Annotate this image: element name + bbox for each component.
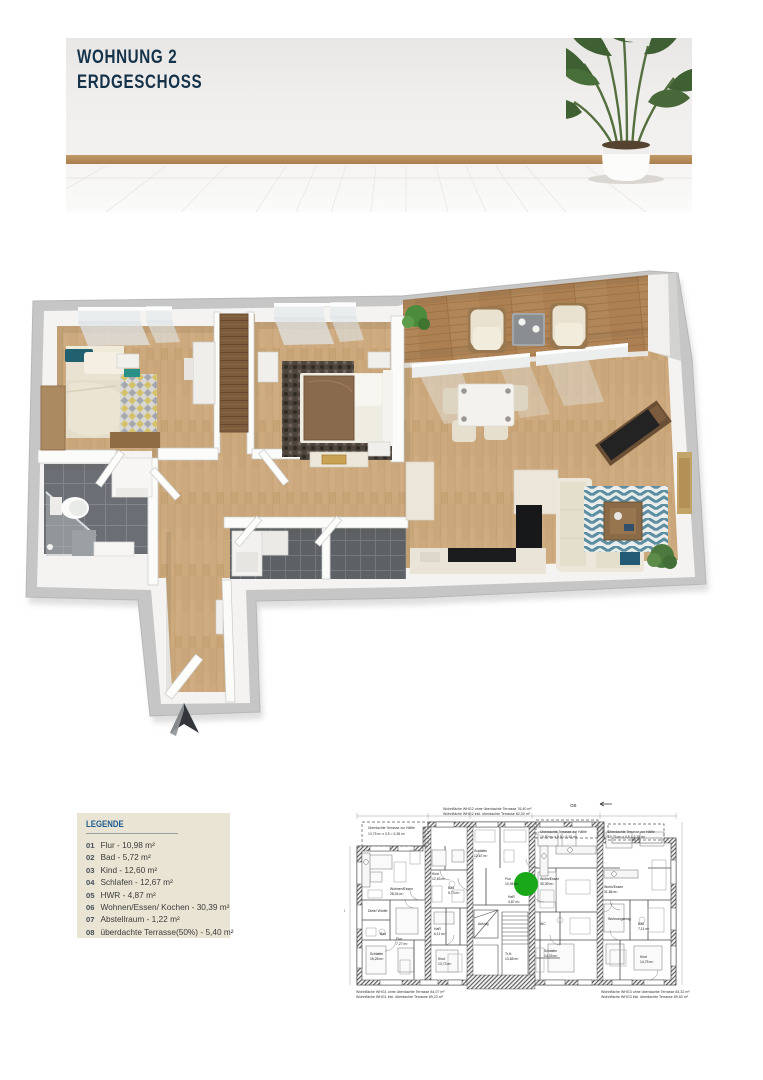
svg-text:13,75 m² x 0,5 = 5,38 m²: 13,75 m² x 0,5 = 5,38 m² [368, 832, 406, 836]
svg-text:Überdachte Terrasse zur Hälfte: Überdachte Terrasse zur Hälfte [368, 826, 415, 830]
svg-text:12,63 m²: 12,63 m² [432, 877, 446, 881]
svg-text:31,86 m²: 31,86 m² [604, 890, 618, 894]
svg-text:Wohnen/Essen: Wohnen/Essen [390, 887, 413, 891]
svg-text:Wohnfläche WHG2 ohne überdacht: Wohnfläche WHG2 ohne überdachte Terrasse… [443, 807, 532, 811]
svg-text:Kind: Kind [438, 957, 445, 961]
svg-text:HaR: HaR [434, 927, 441, 931]
svg-text:Wohn/Essen: Wohn/Essen [540, 877, 559, 881]
svg-text:Schlafen: Schlafen [370, 952, 383, 956]
svg-text:4,87 m²: 4,87 m² [508, 900, 520, 904]
svg-text:30,39 m²: 30,39 m² [540, 882, 554, 886]
svg-text:Wohnfläche WHG1 inkl. überdach: Wohnfläche WHG1 inkl. überdachte Terrass… [356, 995, 444, 999]
svg-text:Schlafen: Schlafen [544, 949, 557, 953]
svg-text:10,80 m² x 0,5 = 5,40 m²: 10,80 m² x 0,5 = 5,40 m² [540, 835, 578, 839]
svg-text:Bad: Bad [380, 932, 386, 936]
svg-text:Wohnfläche WHG1 ohne überdacht: Wohnfläche WHG1 ohne überdachte Terrasse… [356, 990, 445, 994]
svg-text:Flur: Flur [396, 937, 403, 941]
svg-text:Aufzug: Aufzug [478, 922, 489, 926]
svg-text:Flur: Flur [505, 877, 512, 881]
svg-text:28,04 m²: 28,04 m² [390, 892, 404, 896]
svg-text:I: I [344, 908, 345, 913]
svg-text:Kind: Kind [432, 872, 439, 876]
svg-text:Bad: Bad [448, 886, 454, 890]
svg-text:15,28 m²: 15,28 m² [370, 957, 384, 961]
svg-text:Überdachte Terrasse zur Hälfte: Überdachte Terrasse zur Hälfte [608, 830, 655, 834]
svg-text:Wohnfläche WHG3 inkl. überdach: Wohnfläche WHG3 inkl. überdachte Terrass… [601, 995, 689, 999]
svg-text:Wohnungseing.: Wohnungseing. [608, 917, 632, 921]
svg-text:Überdachte Terrasse zur Hälfte: Überdachte Terrasse zur Hälfte [540, 830, 587, 834]
svg-text:13,73 m²: 13,73 m² [438, 962, 452, 966]
svg-text:14,75 m²: 14,75 m² [640, 960, 654, 964]
svg-text:Wohn/Essen: Wohn/Essen [604, 885, 623, 889]
svg-text:Wohnfläche WHG2 inkl. überdach: Wohnfläche WHG2 inkl. überdachte Terrass… [443, 812, 531, 816]
svg-text:Kind: Kind [640, 955, 647, 959]
svg-text:7,11 m²: 7,11 m² [638, 927, 650, 931]
svg-text:7,27 m²: 7,27 m² [396, 942, 408, 946]
svg-text:HaR: HaR [508, 895, 515, 899]
svg-text:13,68 m²: 13,68 m² [505, 957, 519, 961]
svg-text:Wohnfläche WHG3 ohne überdacht: Wohnfläche WHG3 ohne überdachte Terrasse… [601, 990, 690, 994]
svg-text:14,33 m²: 14,33 m² [544, 954, 558, 958]
svg-text:5,73 m²: 5,73 m² [448, 891, 460, 895]
svg-text:10,98 m²: 10,98 m² [505, 882, 519, 886]
svg-text:WC: WC [540, 922, 546, 926]
svg-text:10,75 m² x 0,5 = 5,38 m²: 10,75 m² x 0,5 = 5,38 m² [608, 835, 646, 839]
svg-text:Diele/ Würfel: Diele/ Würfel [368, 909, 388, 913]
svg-text:Bad: Bad [638, 922, 644, 926]
svg-text:Tr.H.: Tr.H. [505, 952, 512, 956]
svg-text:OB: OB [570, 803, 577, 808]
svg-text:12,67 m²: 12,67 m² [474, 854, 488, 858]
svg-text:Schlafen: Schlafen [474, 849, 487, 853]
svg-text:6,11 m²: 6,11 m² [434, 932, 446, 936]
